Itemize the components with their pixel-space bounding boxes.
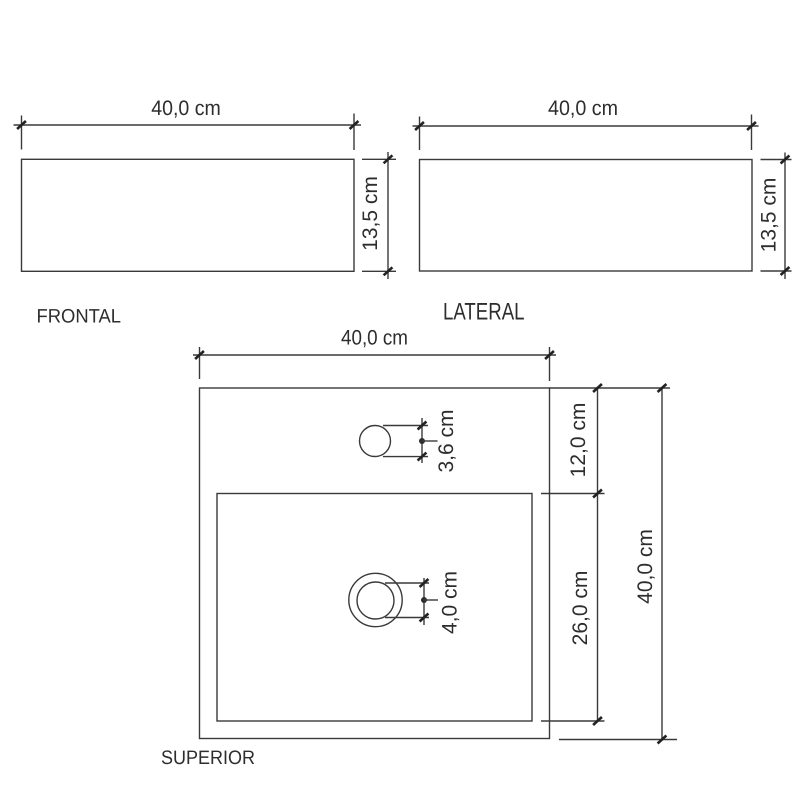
svg-text:12,0 cm: 12,0 cm (567, 403, 590, 478)
svg-text:4,0 cm: 4,0 cm (439, 571, 462, 634)
svg-text:40,0 cm: 40,0 cm (151, 97, 221, 120)
svg-text:40,0 cm: 40,0 cm (634, 529, 657, 604)
svg-text:3,6 cm: 3,6 cm (435, 409, 458, 472)
svg-text:LATERAL: LATERAL (443, 299, 525, 326)
svg-text:13,5 cm: 13,5 cm (359, 176, 382, 251)
svg-text:13,5 cm: 13,5 cm (758, 178, 781, 253)
svg-text:26,0 cm: 26,0 cm (569, 571, 592, 646)
svg-text:FRONTAL: FRONTAL (37, 306, 122, 328)
svg-text:40,0 cm: 40,0 cm (548, 97, 618, 120)
svg-text:SUPERIOR: SUPERIOR (161, 747, 255, 769)
svg-text:40,0 cm: 40,0 cm (341, 327, 408, 350)
